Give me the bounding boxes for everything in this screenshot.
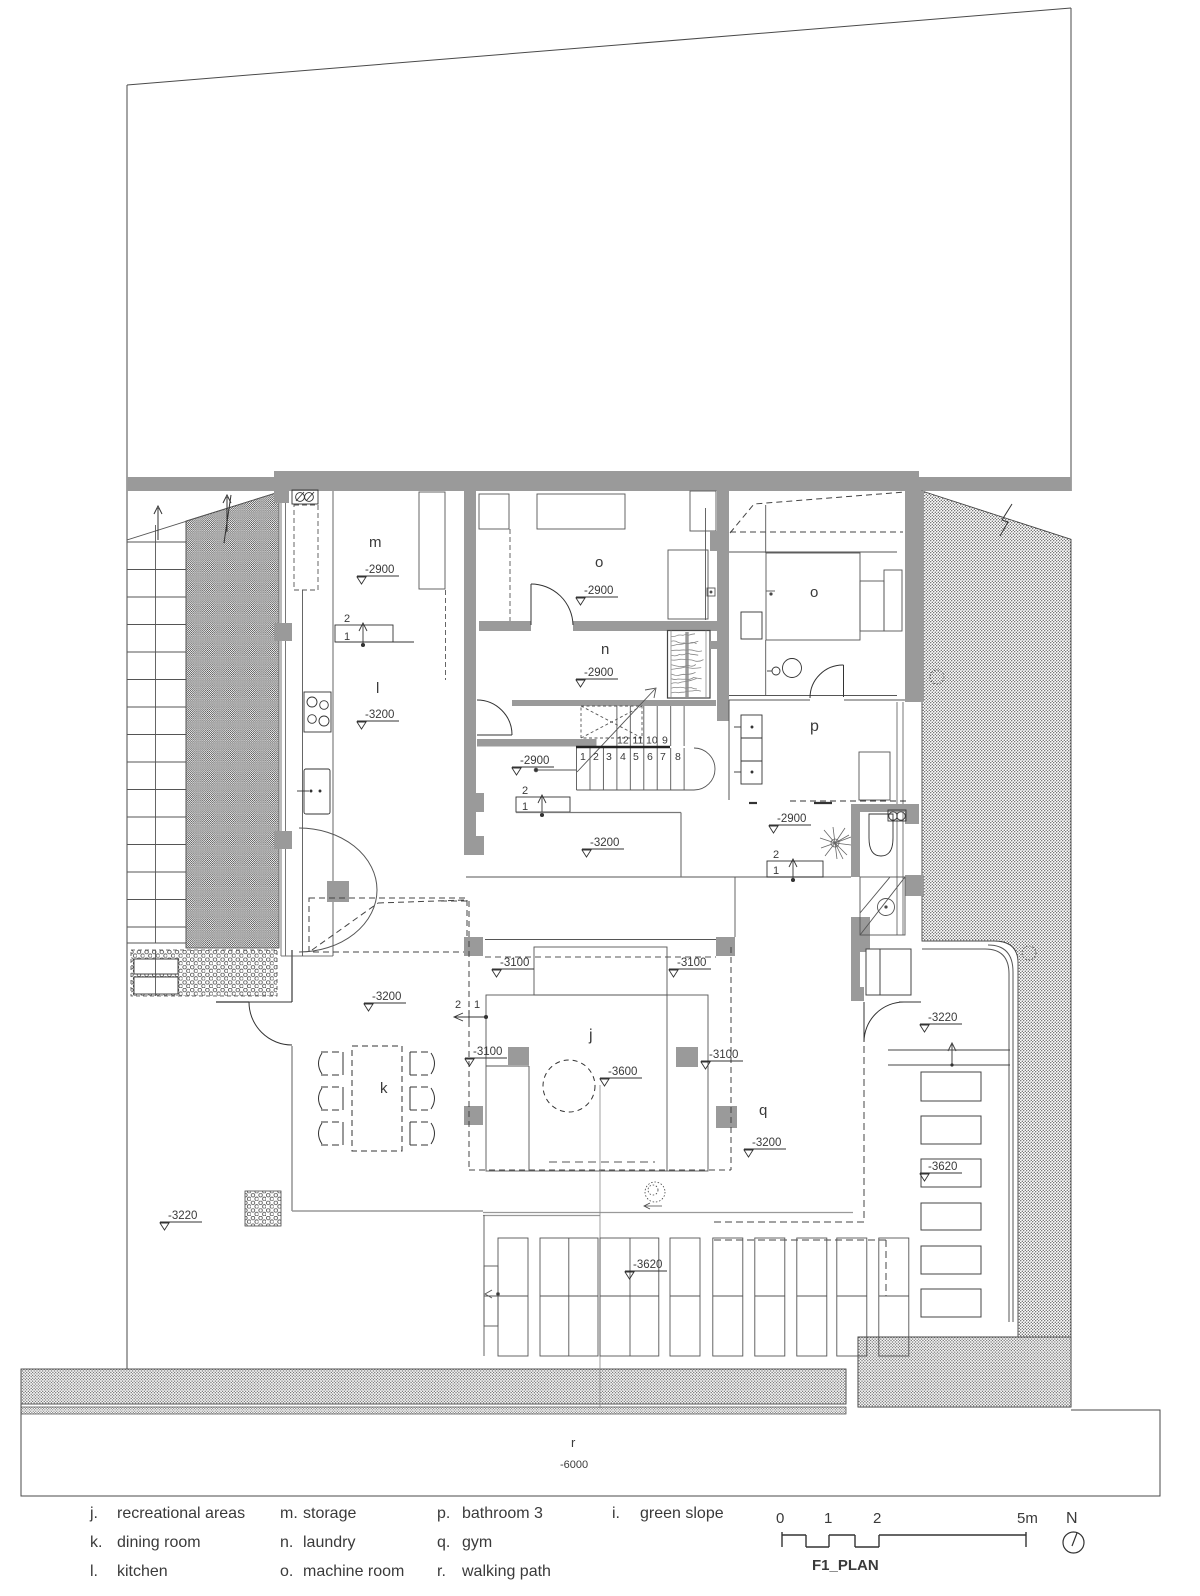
svg-text:1: 1 — [344, 631, 350, 643]
svg-text:1: 1 — [522, 801, 528, 813]
svg-text:2: 2 — [873, 1510, 881, 1527]
svg-text:r: r — [571, 1435, 576, 1450]
svg-text:r.: r. — [437, 1563, 446, 1580]
svg-text:p: p — [810, 718, 819, 735]
svg-text:12: 12 — [617, 735, 629, 747]
svg-text:2: 2 — [344, 613, 350, 625]
svg-text:m: m — [369, 534, 382, 551]
svg-text:j: j — [588, 1027, 593, 1044]
svg-text:5m: 5m — [1017, 1510, 1038, 1527]
svg-text:-6000: -6000 — [560, 1459, 588, 1471]
svg-text:-2900: -2900 — [520, 755, 549, 767]
svg-text:-3100: -3100 — [473, 1046, 502, 1058]
svg-text:2: 2 — [455, 999, 461, 1011]
svg-text:m.: m. — [280, 1505, 298, 1522]
svg-text:-3200: -3200 — [365, 709, 394, 721]
svg-text:F1_PLAN: F1_PLAN — [812, 1557, 879, 1574]
svg-text:-3200: -3200 — [590, 837, 619, 849]
svg-text:1: 1 — [824, 1510, 832, 1527]
svg-text:-2900: -2900 — [365, 564, 394, 576]
svg-text:-2900: -2900 — [777, 813, 806, 825]
svg-text:6: 6 — [647, 751, 653, 763]
svg-text:-3620: -3620 — [928, 1161, 957, 1173]
svg-text:2: 2 — [593, 751, 599, 763]
svg-text:o: o — [595, 554, 603, 571]
svg-text:walking path: walking path — [461, 1563, 551, 1580]
svg-text:-3620: -3620 — [633, 1259, 662, 1271]
svg-text:11: 11 — [633, 735, 644, 747]
svg-text:bathroom 3: bathroom 3 — [462, 1505, 543, 1522]
svg-text:8: 8 — [675, 751, 681, 763]
svg-text:j.: j. — [89, 1505, 98, 1522]
svg-text:kitchen: kitchen — [117, 1563, 168, 1580]
svg-text:n.: n. — [280, 1534, 293, 1551]
svg-text:-3220: -3220 — [928, 1012, 957, 1024]
svg-text:storage: storage — [303, 1505, 356, 1522]
svg-text:machine room: machine room — [303, 1563, 404, 1580]
svg-text:o: o — [810, 584, 818, 601]
svg-text:-3100: -3100 — [709, 1049, 738, 1061]
svg-text:1: 1 — [773, 865, 779, 877]
svg-text:laundry: laundry — [303, 1534, 355, 1551]
svg-text:recreational areas: recreational areas — [117, 1505, 245, 1522]
svg-text:q: q — [759, 1102, 767, 1119]
svg-text:k.: k. — [90, 1534, 102, 1551]
svg-text:gym: gym — [462, 1534, 492, 1551]
svg-text:n: n — [601, 641, 609, 658]
svg-text:o.: o. — [280, 1563, 293, 1580]
svg-text:3: 3 — [606, 751, 612, 763]
svg-text:-2900: -2900 — [584, 667, 613, 679]
svg-text:-3220: -3220 — [168, 1210, 197, 1222]
svg-text:l.: l. — [90, 1563, 98, 1580]
svg-text:q.: q. — [437, 1534, 450, 1551]
svg-text:p.: p. — [437, 1505, 450, 1522]
svg-text:k: k — [380, 1080, 388, 1097]
svg-text:-3200: -3200 — [372, 991, 401, 1003]
svg-text:dining room: dining room — [117, 1534, 201, 1551]
svg-text:7: 7 — [660, 751, 666, 763]
svg-text:-3600: -3600 — [608, 1066, 637, 1078]
svg-text:-3200: -3200 — [752, 1137, 781, 1149]
svg-text:N: N — [1066, 1510, 1078, 1527]
svg-text:1: 1 — [580, 751, 586, 763]
svg-text:i.: i. — [612, 1505, 620, 1522]
svg-text:1: 1 — [474, 999, 480, 1011]
svg-text:2: 2 — [522, 785, 528, 797]
svg-text:0: 0 — [776, 1510, 784, 1527]
svg-text:10: 10 — [646, 735, 658, 747]
svg-text:4: 4 — [620, 751, 626, 763]
svg-text:-3100: -3100 — [677, 957, 706, 969]
svg-text:-3100: -3100 — [500, 957, 529, 969]
svg-text:2: 2 — [773, 849, 779, 861]
svg-text:l: l — [376, 680, 379, 697]
svg-text:5: 5 — [633, 751, 639, 763]
svg-text:green slope: green slope — [640, 1505, 724, 1522]
svg-text:-2900: -2900 — [584, 585, 613, 597]
svg-text:9: 9 — [662, 735, 668, 747]
